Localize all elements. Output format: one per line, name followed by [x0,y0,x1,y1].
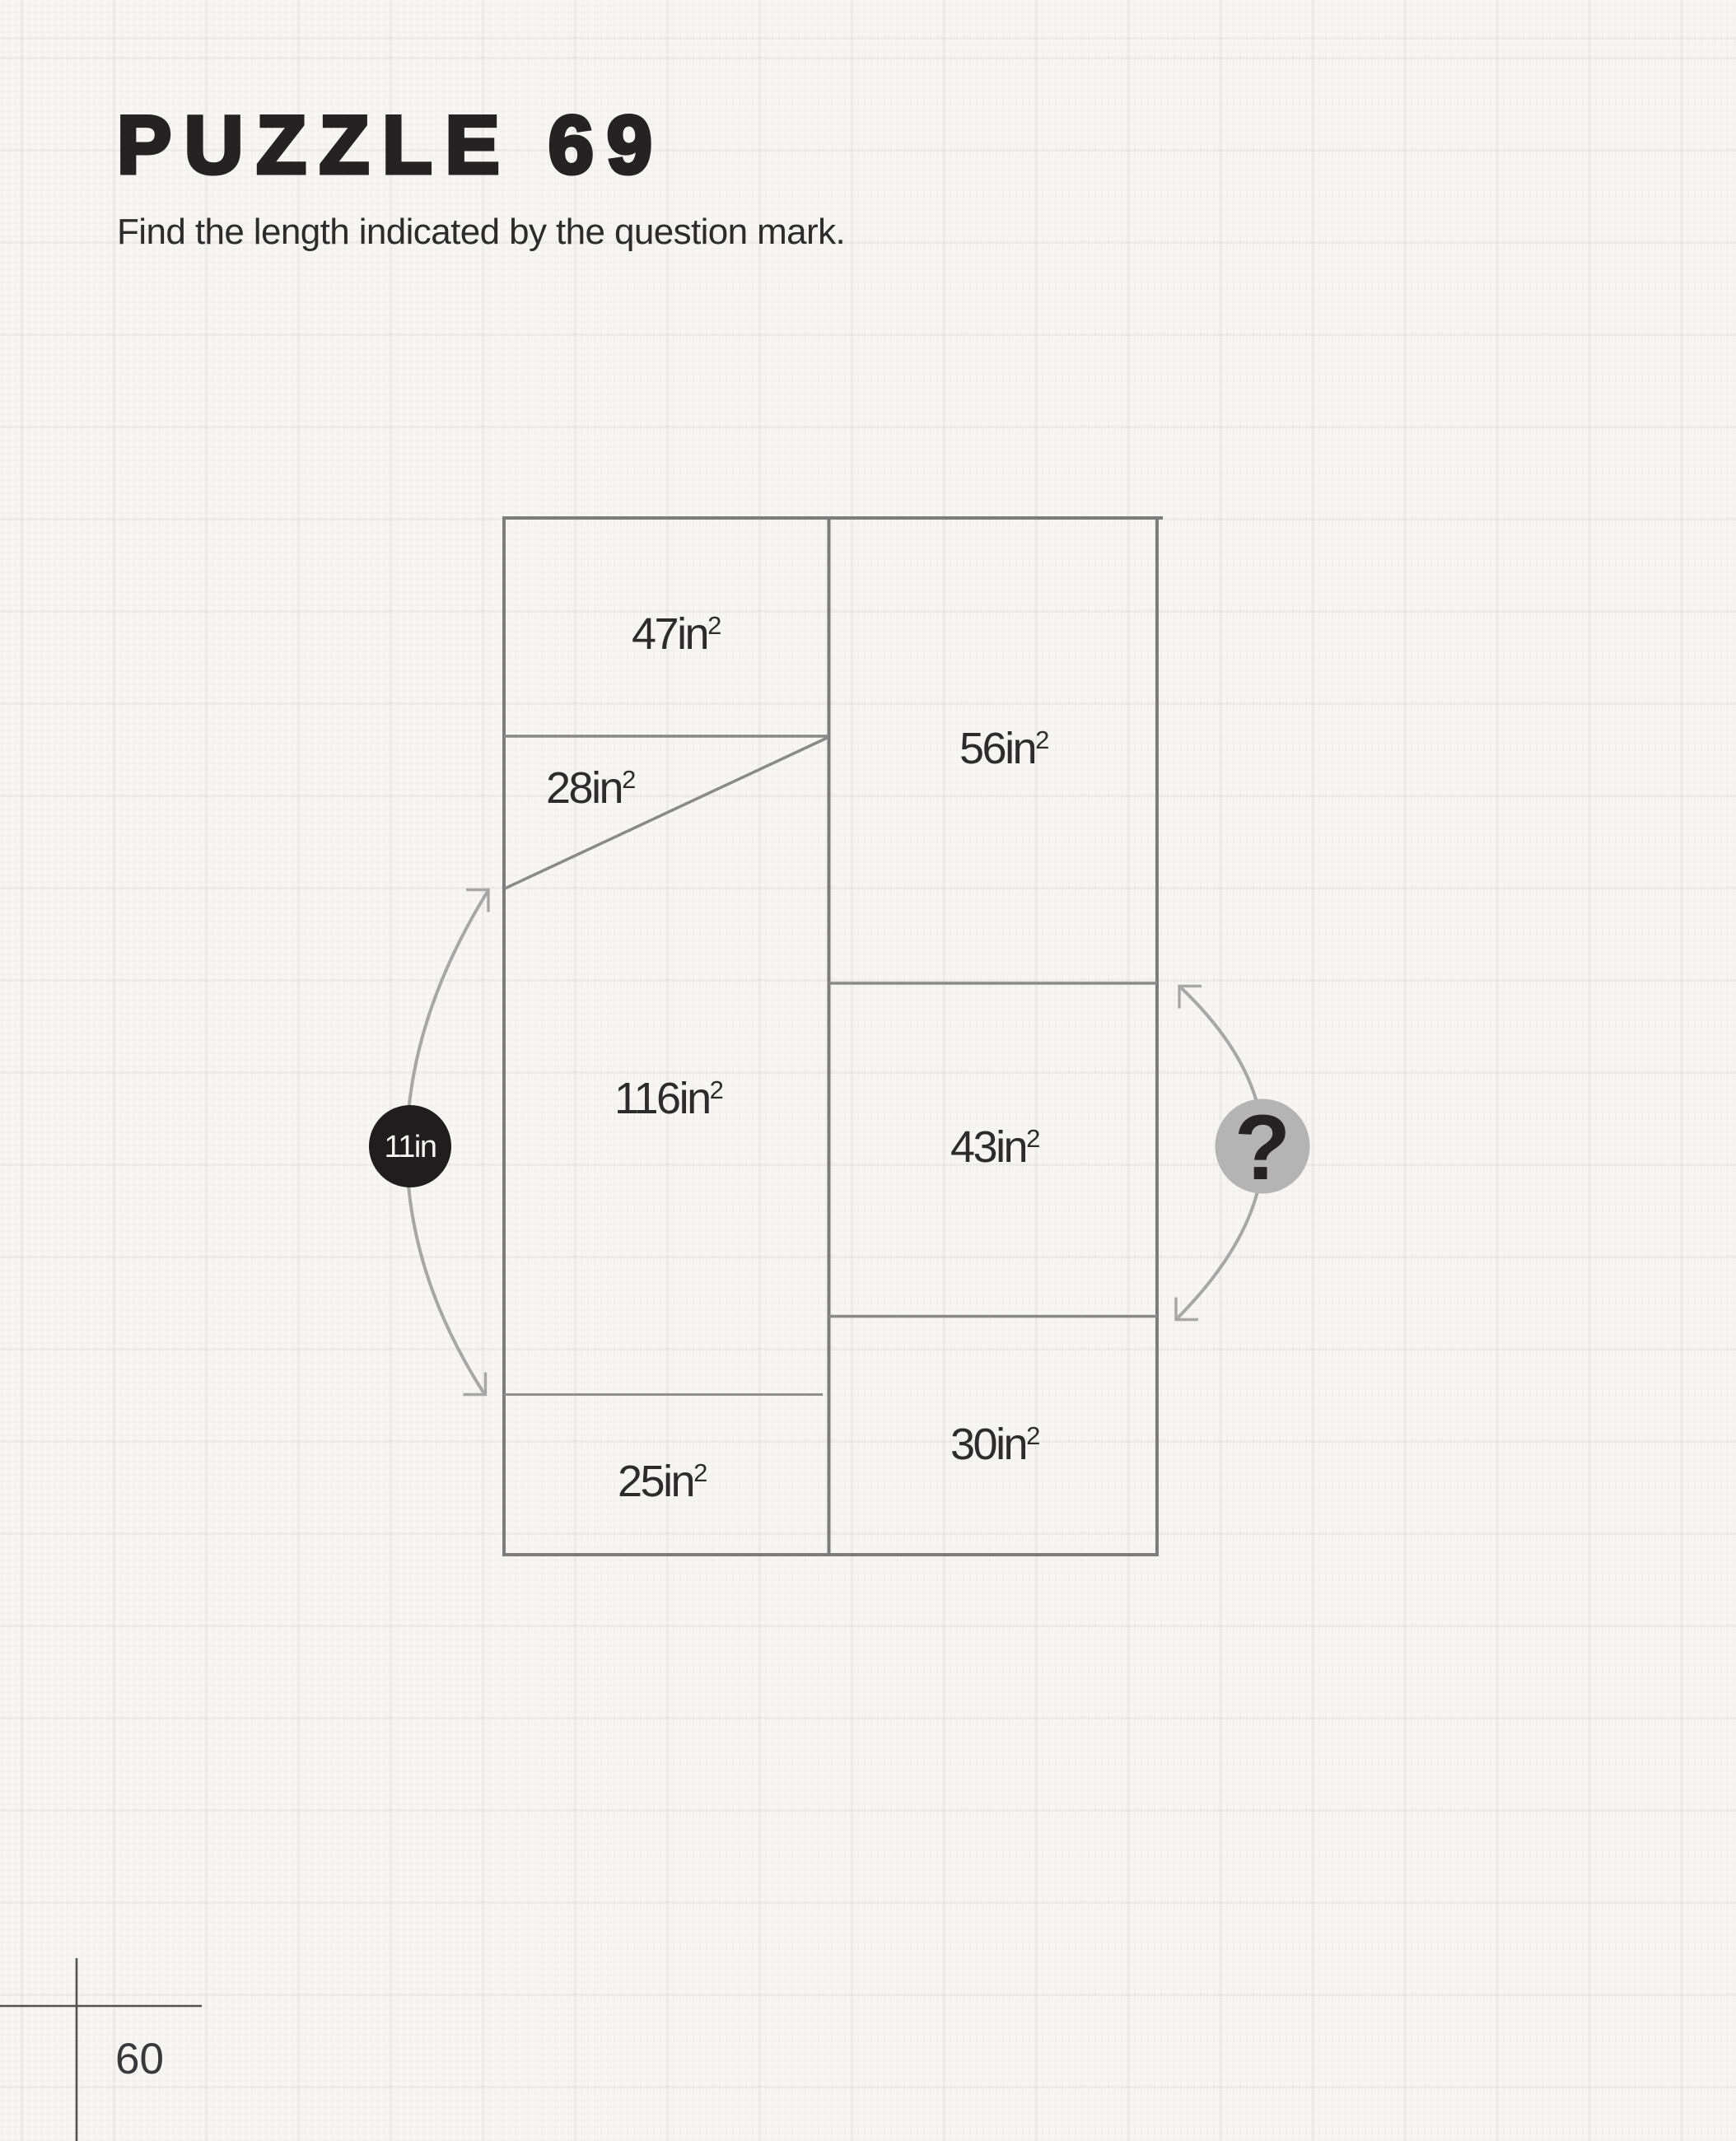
svg-text:Find the length indicated by t: Find the length indicated by the questio… [117,212,845,252]
svg-text:30in2: 30in2 [950,1420,1039,1469]
svg-text:47in2: 47in2 [632,609,721,659]
svg-text:116in2: 116in2 [614,1074,723,1123]
svg-text:60: 60 [115,2035,164,2083]
svg-text:PUZZLE 69: PUZZLE 69 [117,99,665,190]
svg-text:43in2: 43in2 [950,1122,1039,1172]
svg-text:?: ? [1234,1096,1290,1199]
svg-text:25in2: 25in2 [618,1457,707,1506]
svg-text:56in2: 56in2 [959,724,1048,773]
svg-text:28in2: 28in2 [546,763,635,813]
svg-text:11in: 11in [384,1130,436,1164]
